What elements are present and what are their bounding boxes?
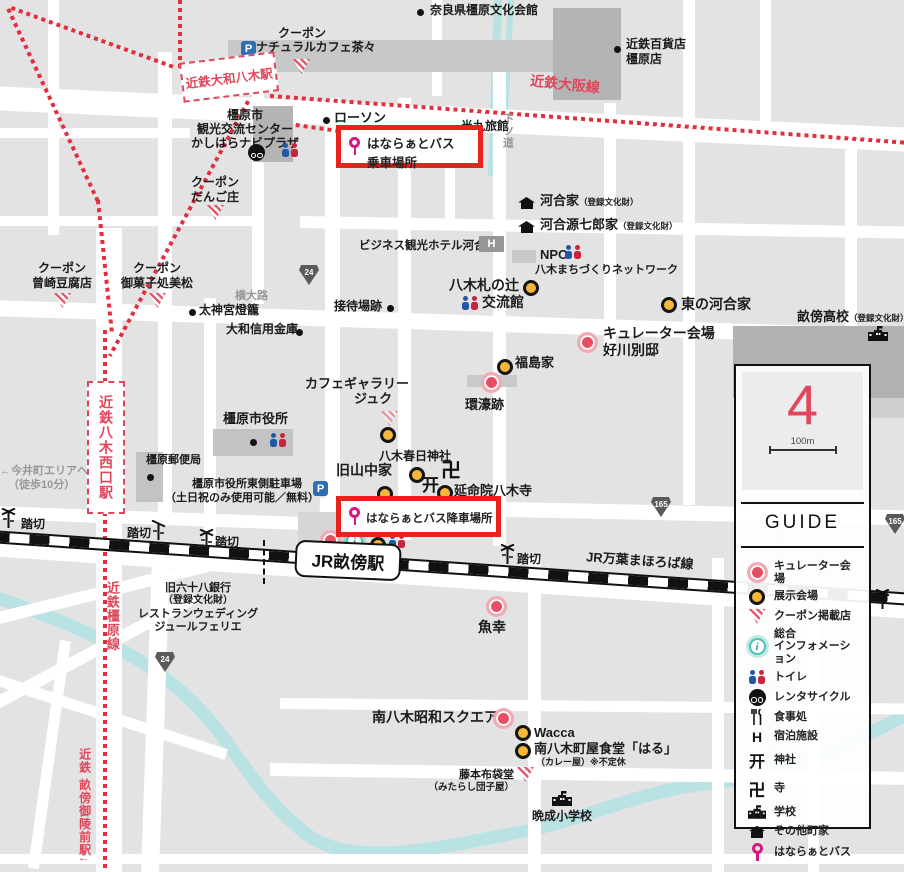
poi-dot xyxy=(387,305,394,312)
coupon-triangle-icon xyxy=(381,411,398,426)
legend-item: 学校 xyxy=(746,804,861,820)
legend-item: はならぁとバス xyxy=(746,843,861,862)
scale-label: 100m xyxy=(791,436,815,447)
railroad-crossing-icon xyxy=(1,508,16,528)
temple-manji-icon: 卍 xyxy=(441,461,461,481)
legend-item: キュレーター会場 xyxy=(746,560,861,585)
legend-item: 卍寺 xyxy=(746,776,861,801)
label-haru-note: （カレー屋）※不定休 xyxy=(536,757,626,768)
road xyxy=(528,558,541,872)
label-lawson: ローソン xyxy=(334,110,386,126)
label-yoshikawa: キュレーター会場好川別邸 xyxy=(603,325,715,359)
legend-item: レンタサイクル xyxy=(746,689,861,706)
label-kawai-gen: 河合源七郎家（登録文化財） xyxy=(540,217,678,233)
label-parking-note: （土日祝のみ使用可能／無料） xyxy=(165,492,319,505)
label-kawai: 河合家（登録文化財） xyxy=(540,193,639,209)
school-icon xyxy=(552,791,572,806)
label-post-office: 橿原郵便局 xyxy=(146,454,201,467)
curator-circle-icon xyxy=(493,708,514,729)
legend-item: 食事処 xyxy=(746,709,861,725)
hotel-icon: H xyxy=(479,236,504,252)
label-fudanotsuji: 八木札の辻 xyxy=(449,277,519,294)
poi-dot xyxy=(323,117,330,124)
label-yamanaka: 旧山中家 xyxy=(336,462,392,479)
info-icon: i xyxy=(746,638,768,655)
curator-circle-icon xyxy=(577,332,598,353)
toilet-icon xyxy=(565,245,581,259)
railroad-crossing-icon xyxy=(875,589,890,609)
exhibit-circle-icon xyxy=(523,280,539,296)
toilet-icon xyxy=(462,296,478,310)
label-npo-network: 八木まちづくりネットワーク xyxy=(535,264,678,277)
route-165-shield: 165 xyxy=(651,497,671,517)
label-showa-square: 南八木昭和スクエア xyxy=(372,709,498,726)
label-board-stop: はならぁとバス乗車場所 xyxy=(367,133,455,171)
label-settaiba: 接待場跡 xyxy=(334,299,382,314)
railroad-crossing-icon xyxy=(151,520,166,540)
poi-dot xyxy=(250,439,257,446)
toilet-icon xyxy=(746,670,768,684)
label-fumikiri: 踏切 xyxy=(21,517,45,532)
coupon-triangle-icon xyxy=(54,293,71,308)
label-imaicho-walk: （徒歩10分） xyxy=(8,479,75,492)
exhibit-circle-icon xyxy=(746,589,768,605)
route-165-shield: 165 xyxy=(885,514,904,534)
label-uokou: 魚幸 xyxy=(478,619,506,636)
label-dept-store: 近鉄百貨店橿原店 xyxy=(626,37,686,66)
road xyxy=(0,128,190,138)
legend-rows: キュレーター会場 展示会場 クーポン掲載店 i総合インフォメーション トイレ レ… xyxy=(736,548,869,862)
label-shimotsumichi: 下ツ道 xyxy=(500,113,513,149)
compass-logo: 4 xyxy=(787,374,818,436)
railroad-crossing-icon xyxy=(199,529,214,549)
machiya-house-icon xyxy=(746,826,768,838)
kintetsu-rail-dotted xyxy=(178,0,182,72)
poi-dot xyxy=(614,46,621,53)
label-alight-stop: はならぁとバス降車場所 xyxy=(366,510,493,526)
exhibit-circle-icon xyxy=(515,743,531,759)
toilet-icon xyxy=(282,143,298,157)
legend-item: 开神社 xyxy=(746,748,861,772)
temple-manji-icon: 卍 xyxy=(746,776,768,801)
legend-item: H宿泊施設 xyxy=(746,729,861,745)
station-jr-unebi: JR畝傍駅 xyxy=(294,540,402,582)
rental-cycle-icon xyxy=(248,144,265,161)
route-24-shield: 24 xyxy=(299,265,319,285)
bus-stop-icon xyxy=(746,843,768,862)
bus-stop-icon xyxy=(348,137,361,156)
label-yokooji: 横大路 xyxy=(235,290,268,303)
curator-circle-icon xyxy=(481,372,502,393)
road xyxy=(683,0,695,505)
kintetsu-rail-dotted xyxy=(103,330,107,386)
label-npo: NPO xyxy=(540,247,568,263)
label-parking-east: 橿原市役所東側駐車場 xyxy=(192,478,302,491)
legend-item: i総合インフォメーション xyxy=(746,628,861,666)
road xyxy=(204,298,216,546)
curator-circle-icon xyxy=(486,596,507,617)
label-mimatsu: クーポン御菓子処美松 xyxy=(112,261,202,290)
dashed-connector xyxy=(263,540,265,584)
label-fujimoto: 藤本布袋堂（みたらし団子屋） xyxy=(420,769,514,794)
poi-dot xyxy=(417,9,424,16)
school-icon xyxy=(746,805,768,819)
road xyxy=(712,558,724,872)
coupon-triangle-icon xyxy=(149,293,166,308)
label-hotel-kawai: ビジネス観光ホテル河合 xyxy=(359,239,486,253)
restaurant-icon xyxy=(746,709,768,725)
coupon-triangle-icon xyxy=(293,59,310,74)
coupon-triangle-icon xyxy=(207,205,224,220)
label-haru: 南八木町屋食堂「はる」 xyxy=(534,741,677,757)
station-nishiguchi: 近鉄八木西口駅 xyxy=(87,381,125,514)
exhibit-circle-icon xyxy=(380,427,396,443)
hotel-icon: H xyxy=(746,729,768,745)
toilet-icon xyxy=(270,433,286,447)
label-bunkakaikan: 奈良県橿原文化会館 xyxy=(430,3,538,18)
label-sozaki: クーポン曾崎豆腐店 xyxy=(20,261,104,290)
label-fukushima: 福島家 xyxy=(515,355,554,371)
bus-stop-icon xyxy=(348,507,361,526)
divider xyxy=(741,502,864,504)
school-icon xyxy=(868,326,888,341)
shrine-torii-icon: 开 xyxy=(746,748,768,772)
legend-title: GUIDE xyxy=(736,512,869,534)
railroad-crossing-icon xyxy=(500,544,515,564)
poi-dot xyxy=(189,309,196,316)
label-koryukan: 交流館 xyxy=(482,294,524,311)
label-cafe-gallery: カフェギャラリー xyxy=(305,376,409,392)
machiya-house-icon xyxy=(518,197,535,209)
scale-bar xyxy=(769,449,837,451)
label-goryomae: 近鉄 畝傍御陵前駅↓ xyxy=(77,748,92,863)
label-bank68: 旧六十八銀行（登録文化財） レストランウェディングジュールフェリエ xyxy=(128,582,268,634)
label-dango: クーポンだんご庄 xyxy=(173,175,257,204)
label-unebi-hs: 畝傍高校（登録文化財） xyxy=(797,309,904,325)
highlight-board-stop: はならぁとバス乗車場所 xyxy=(336,125,483,168)
legend-item: その他町家 xyxy=(746,824,861,840)
label-fumikiri: 踏切 xyxy=(127,526,151,541)
legend-item: トイレ xyxy=(746,669,861,685)
route-24-shield: 24 xyxy=(155,652,175,672)
parking-icon: P xyxy=(313,481,328,496)
label-juku: ジュク xyxy=(354,391,392,407)
exhibit-circle-icon xyxy=(661,297,677,313)
rental-cycle-icon xyxy=(746,689,768,706)
legend-panel: 4 100m GUIDE キュレーター会場 展示会場 クーポン掲載店 i総合イン… xyxy=(734,364,871,829)
coupon-triangle-icon xyxy=(746,609,768,624)
poi-dot xyxy=(296,329,303,336)
label-bansei: 晩成小学校 xyxy=(532,809,592,824)
poi-dot xyxy=(147,474,154,481)
label-imaicho: ←今井町エリアへ xyxy=(0,465,88,478)
exhibit-circle-icon xyxy=(515,725,531,741)
highlight-alight-stop: はならぁとバス降車場所 xyxy=(336,496,501,537)
label-wacca: Wacca xyxy=(534,725,575,741)
label-fumikiri: 踏切 xyxy=(517,552,541,567)
legend-item: クーポン掲載店 xyxy=(746,608,861,624)
compass-box: 4 100m xyxy=(742,372,863,490)
label-shinkin: 大和信用金庫 xyxy=(226,322,298,337)
label-cityhall: 橿原市役所 xyxy=(223,411,288,427)
machiya-house-icon xyxy=(518,221,535,233)
label-kashihara-line: 近鉄橿原線 xyxy=(104,581,120,651)
label-navi-plaza: 橿原市観光交流センターかしはらナビプラザ xyxy=(170,109,320,150)
tourist-map: 奈良県橿原文化会館 P クーポン ナチュラルカフェ茶々 近鉄百貨店橿原店 近鉄大… xyxy=(0,0,904,872)
label-coupon: クーポン xyxy=(278,26,326,41)
label-kango: 環濠跡 xyxy=(465,397,504,413)
label-fumikiri: 踏切 xyxy=(215,535,239,550)
curator-circle-icon xyxy=(746,562,768,583)
building-block xyxy=(512,250,536,263)
label-taijingu: 太神宮燈籠 xyxy=(199,303,259,318)
coupon-triangle-icon xyxy=(517,767,534,782)
road xyxy=(760,0,771,133)
label-higashi-kawai: 東の河合家 xyxy=(681,296,751,313)
kintetsu-rail-dotted xyxy=(103,512,107,872)
legend-item: 展示会場 xyxy=(746,589,861,605)
